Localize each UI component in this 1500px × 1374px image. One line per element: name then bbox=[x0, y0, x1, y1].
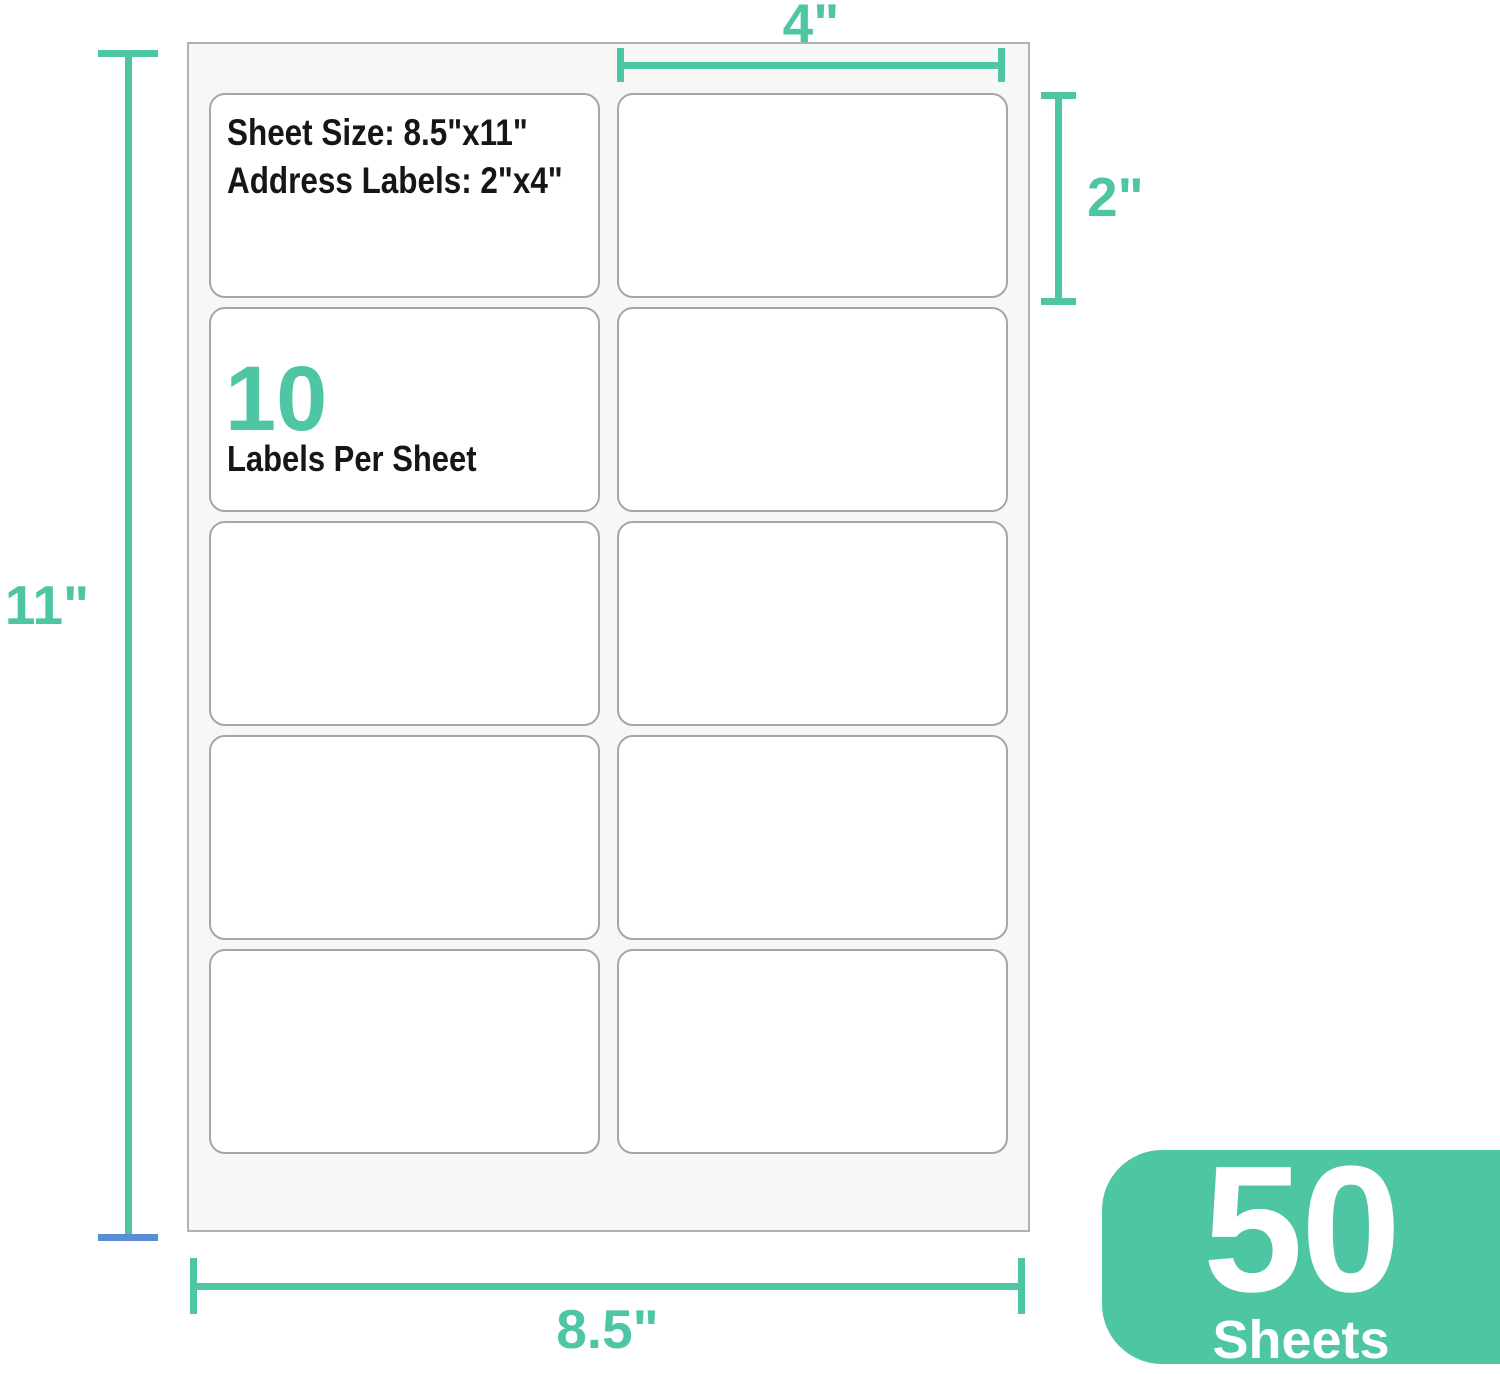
labels-per-sheet-caption: Labels Per Sheet bbox=[227, 437, 477, 480]
label-height-measure bbox=[1041, 92, 1076, 305]
label-size-text: Address Labels: 2"x4" bbox=[227, 157, 563, 205]
measure-tick bbox=[617, 48, 624, 82]
label-cell bbox=[617, 735, 1008, 940]
measure-line bbox=[190, 1283, 1025, 1290]
measure-line bbox=[1055, 92, 1062, 305]
label-cell bbox=[209, 521, 600, 726]
label-cell bbox=[209, 949, 600, 1154]
label-sheet: Sheet Size: 8.5"x11" Address Labels: 2"x… bbox=[187, 42, 1030, 1232]
sheet-count-label: Sheets bbox=[1212, 1313, 1389, 1367]
label-cell-spec: Sheet Size: 8.5"x11" Address Labels: 2"x… bbox=[209, 93, 600, 298]
label-cell-count: 10 Labels Per Sheet bbox=[209, 307, 600, 512]
measure-line bbox=[125, 50, 132, 1241]
measure-tick bbox=[998, 48, 1005, 82]
sheet-height-value: 11" bbox=[0, 578, 94, 633]
spec-text: Sheet Size: 8.5"x11" Address Labels: 2"x… bbox=[227, 109, 563, 205]
product-dimension-diagram: Sheet Size: 8.5"x11" Address Labels: 2"x… bbox=[0, 0, 1500, 1374]
label-cell bbox=[617, 93, 1008, 298]
measure-tick bbox=[1041, 298, 1076, 305]
label-width-value: 4" bbox=[617, 0, 1005, 51]
sheet-width-value: 8.5" bbox=[190, 1302, 1025, 1357]
label-cell bbox=[617, 521, 1008, 726]
labels-per-sheet-number: 10 bbox=[225, 353, 327, 445]
label-cell bbox=[209, 735, 600, 940]
sheet-count-badge: 50 Sheets bbox=[1102, 1150, 1500, 1364]
sheet-size-text: Sheet Size: 8.5"x11" bbox=[227, 109, 563, 157]
label-cell bbox=[617, 949, 1008, 1154]
measure-tick bbox=[98, 50, 158, 57]
measure-line bbox=[617, 62, 1005, 69]
label-cell bbox=[617, 307, 1008, 512]
measure-tick-blue bbox=[98, 1234, 158, 1241]
sheet-height-measure bbox=[98, 50, 158, 1241]
label-grid: Sheet Size: 8.5"x11" Address Labels: 2"x… bbox=[209, 93, 1008, 1154]
measure-tick bbox=[1041, 92, 1076, 99]
sheet-count-number: 50 bbox=[1203, 1162, 1399, 1297]
label-height-value: 2" bbox=[1087, 170, 1144, 225]
